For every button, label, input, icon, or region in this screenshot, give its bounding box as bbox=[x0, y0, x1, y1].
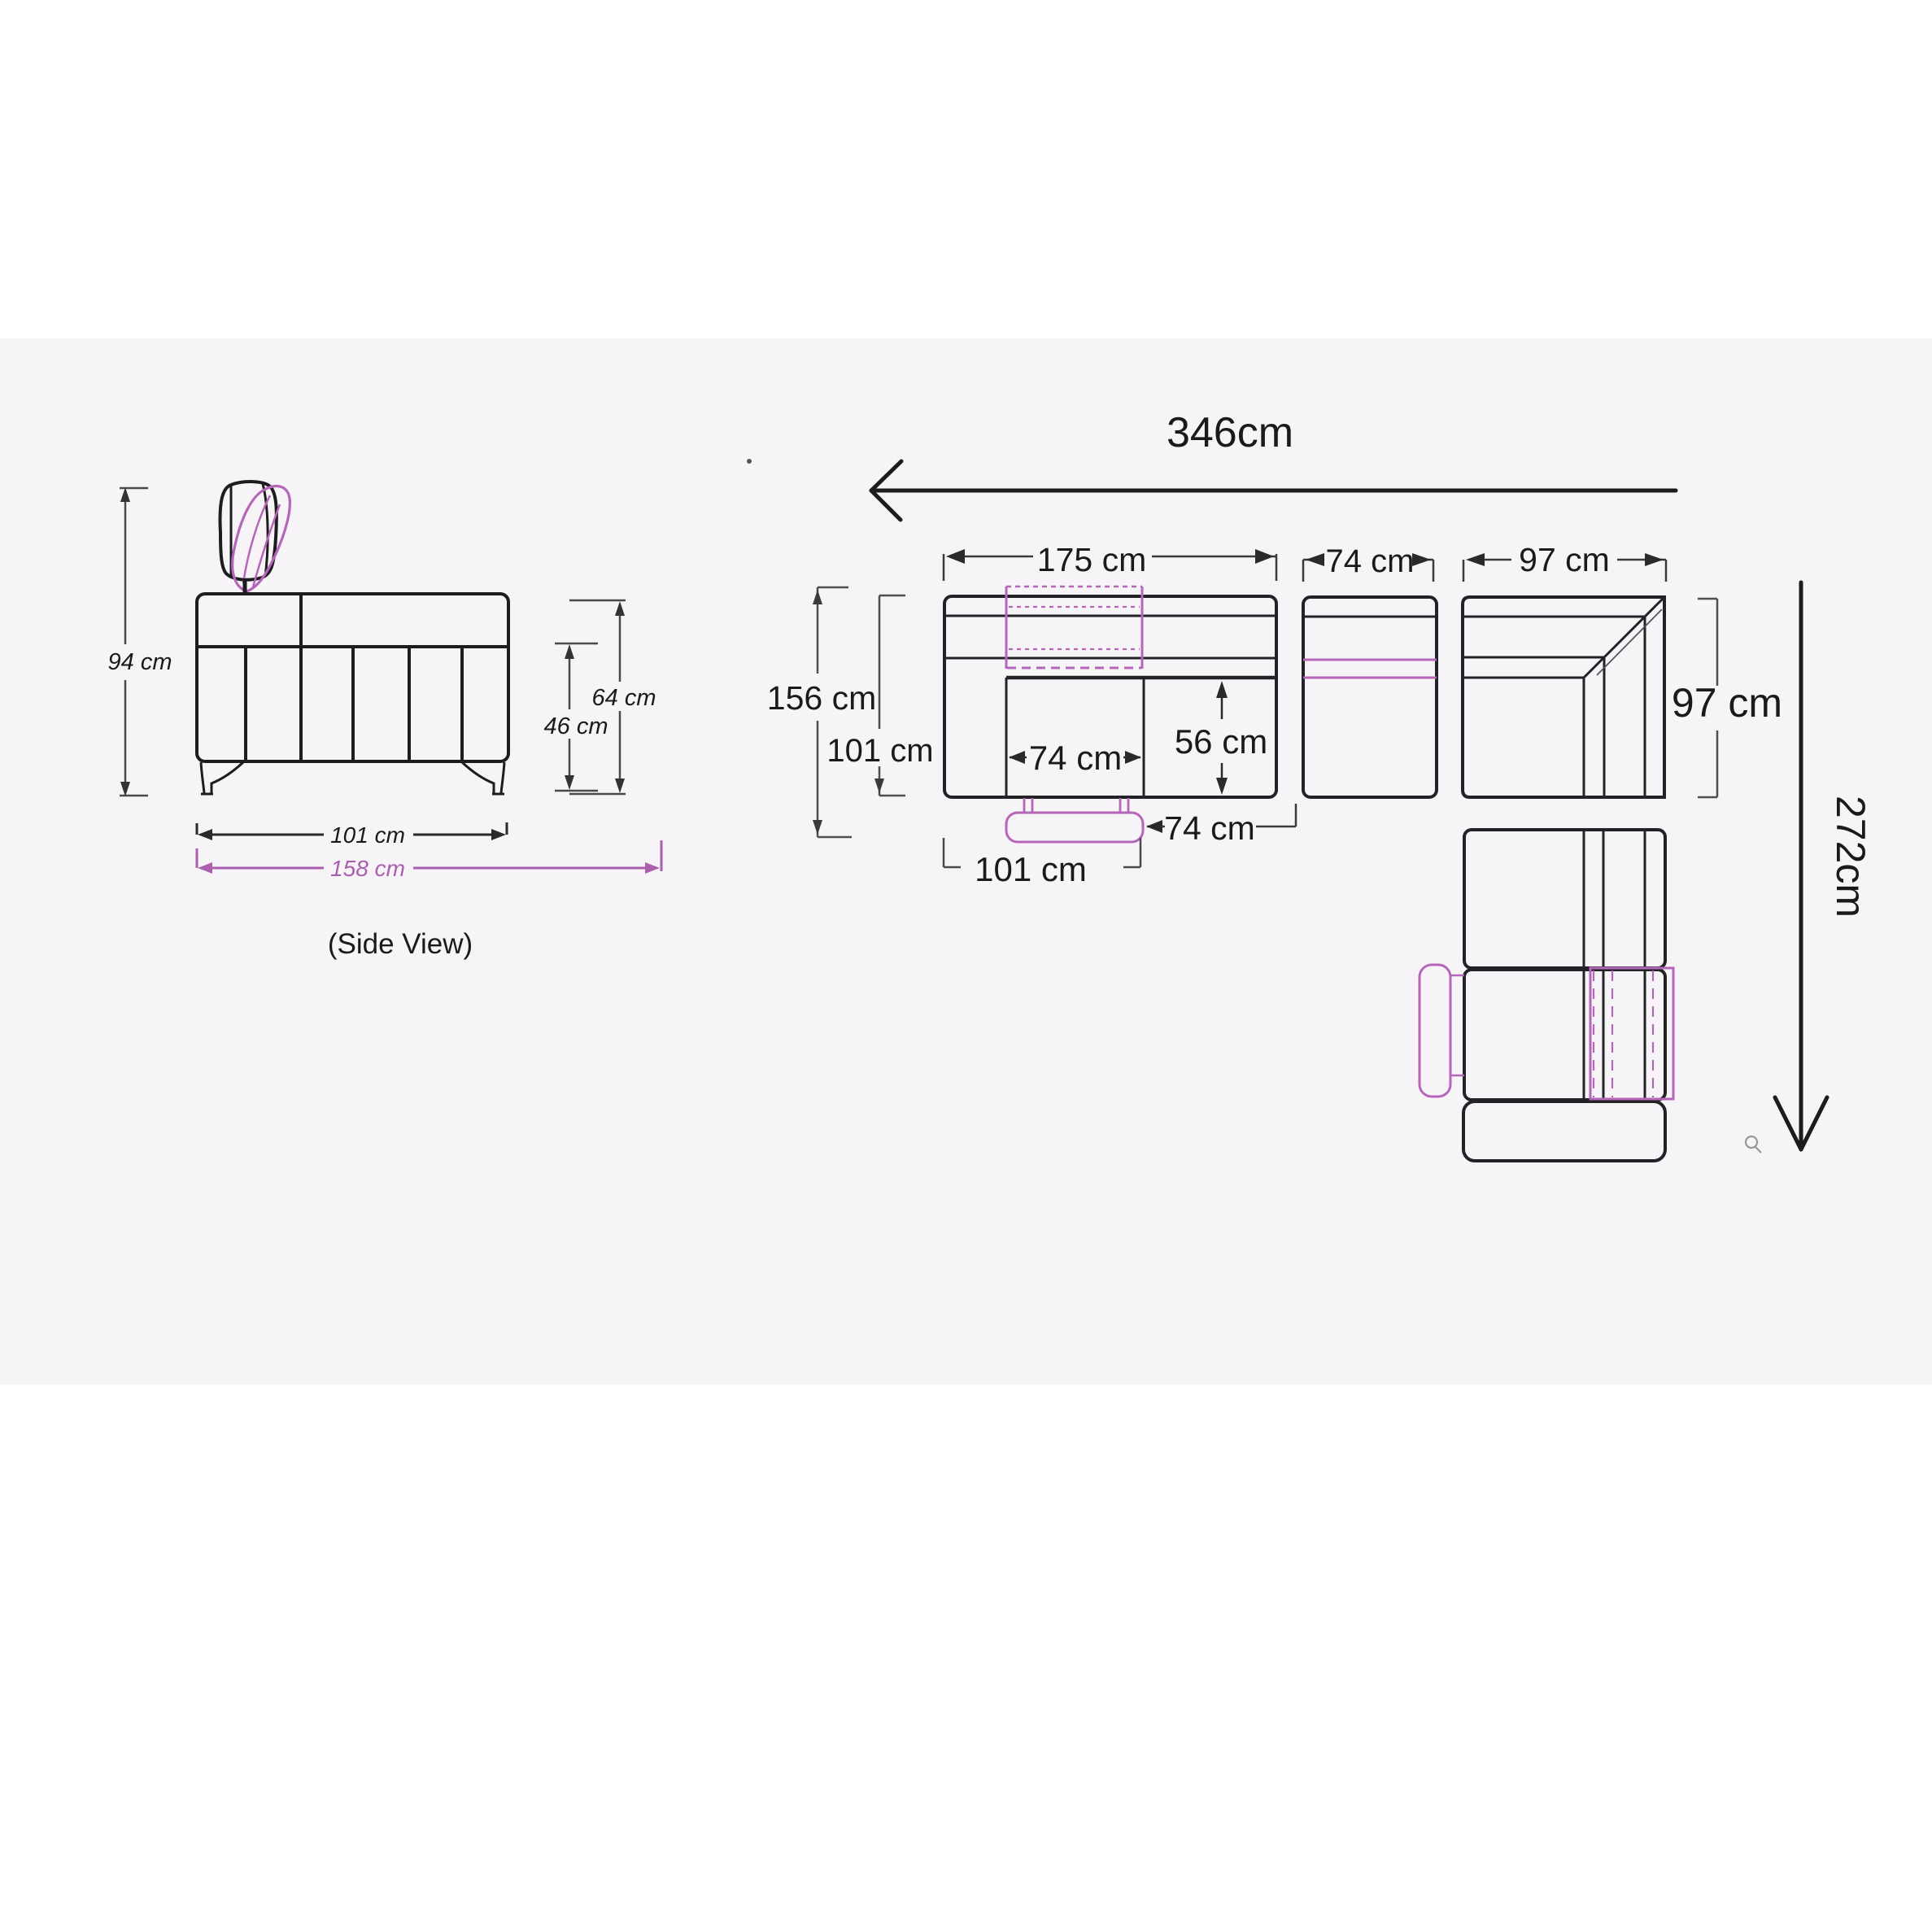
svg-text:101 cm: 101 cm bbox=[975, 850, 1087, 888]
svg-text:346cm: 346cm bbox=[1167, 409, 1293, 456]
svg-text:272cm: 272cm bbox=[1828, 796, 1873, 918]
svg-text:74 cm: 74 cm bbox=[1029, 739, 1122, 777]
svg-text:(Side View): (Side View) bbox=[328, 928, 473, 960]
svg-text:64 cm: 64 cm bbox=[592, 685, 656, 711]
svg-text:97 cm: 97 cm bbox=[1519, 541, 1610, 578]
svg-text:101 cm: 101 cm bbox=[330, 822, 405, 848]
svg-text:175 cm: 175 cm bbox=[1037, 541, 1146, 578]
svg-text:56 cm: 56 cm bbox=[1175, 722, 1267, 761]
svg-text:156 cm: 156 cm bbox=[767, 679, 876, 717]
svg-text:94 cm: 94 cm bbox=[108, 649, 172, 675]
svg-text:74 cm: 74 cm bbox=[1164, 809, 1255, 847]
svg-text:97 cm: 97 cm bbox=[1672, 680, 1782, 726]
svg-text:101 cm: 101 cm bbox=[826, 733, 933, 769]
svg-text:158 cm: 158 cm bbox=[330, 856, 405, 881]
svg-text:46 cm: 46 cm bbox=[544, 713, 608, 739]
svg-text:74 cm: 74 cm bbox=[1326, 543, 1415, 579]
